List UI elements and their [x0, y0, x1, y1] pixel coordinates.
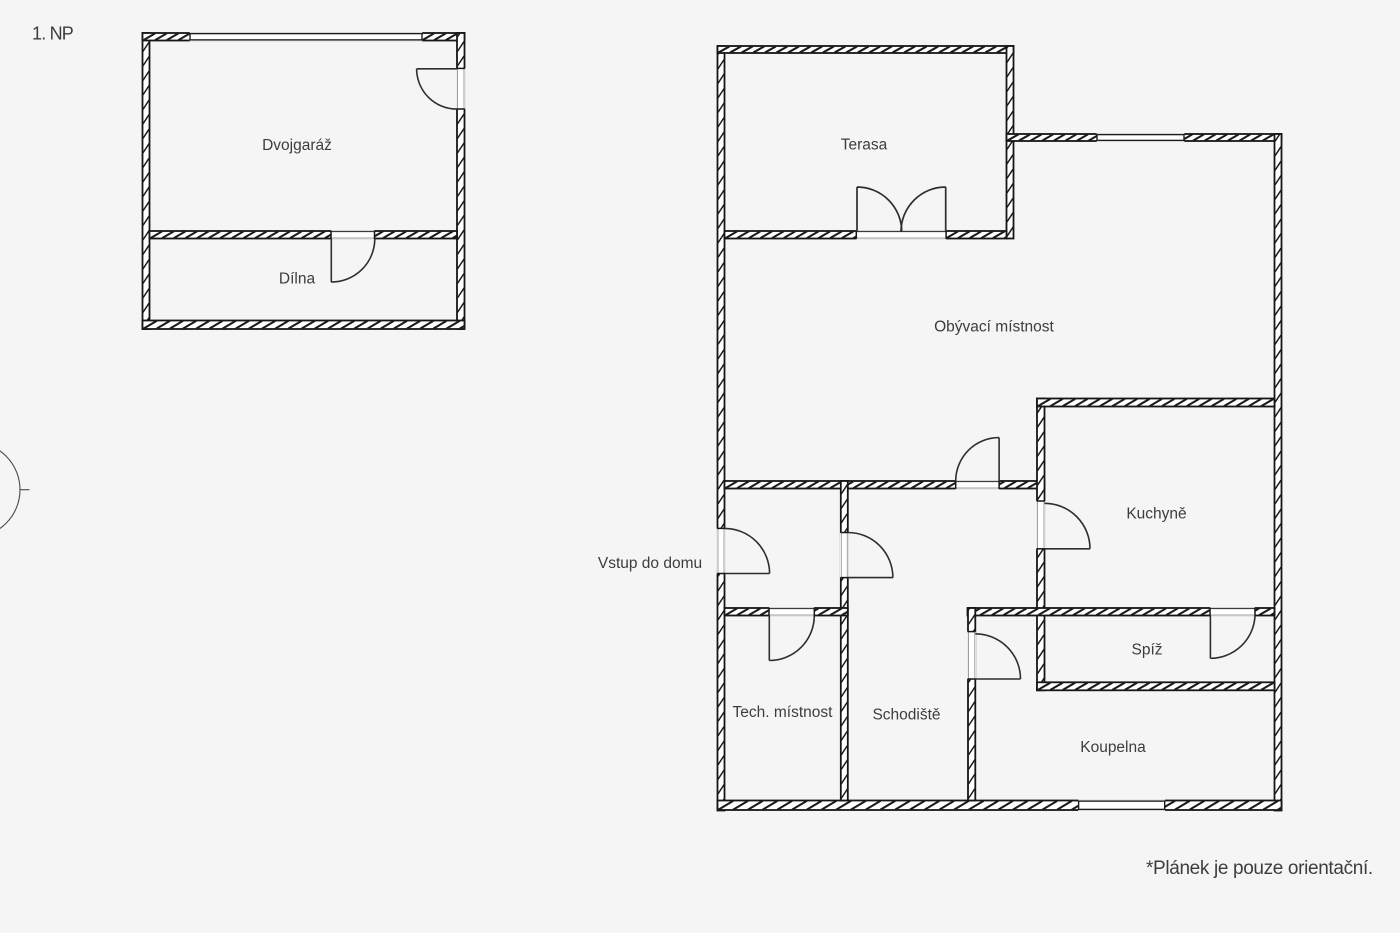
- svg-text:Kuchyně: Kuchyně: [1126, 506, 1186, 523]
- svg-text:Terasa: Terasa: [841, 137, 888, 154]
- svg-text:Dílna: Dílna: [279, 271, 316, 288]
- svg-text:Spíž: Spíž: [1131, 642, 1162, 659]
- svg-text:1. NP: 1. NP: [32, 24, 74, 44]
- svg-text:*Plánek je pouze orientační.: *Plánek je pouze orientační.: [1146, 858, 1373, 879]
- svg-text:Tech. místnost: Tech. místnost: [733, 704, 834, 721]
- svg-text:Vstup do domu: Vstup do domu: [598, 555, 702, 572]
- svg-text:Dvojgaráž: Dvojgaráž: [262, 137, 332, 154]
- svg-text:Obývací místnost: Obývací místnost: [934, 319, 1054, 336]
- svg-text:Schodiště: Schodiště: [872, 707, 940, 724]
- svg-text:Koupelna: Koupelna: [1080, 739, 1146, 756]
